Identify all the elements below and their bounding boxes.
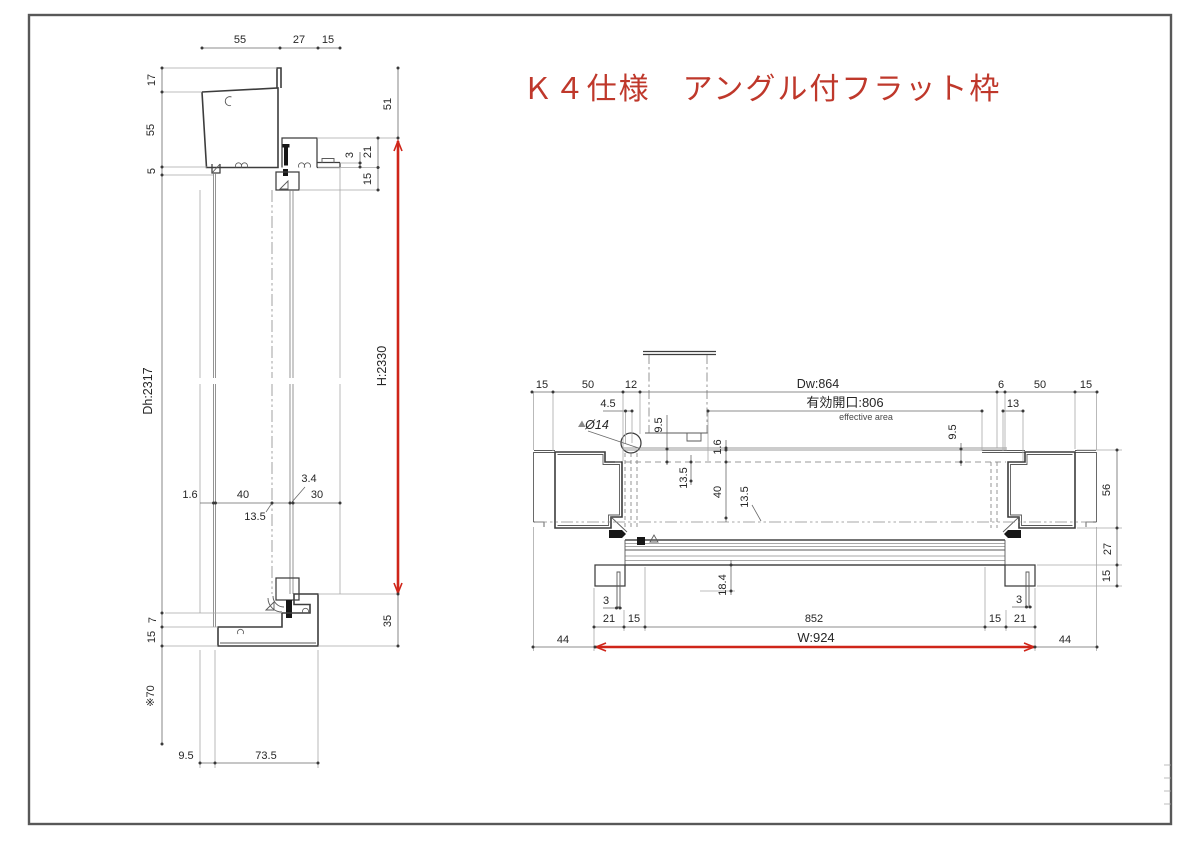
dim-15-rs: 15 bbox=[1101, 570, 1113, 582]
threshold-lines bbox=[625, 544, 1005, 561]
effective-area-label: effective area bbox=[839, 412, 893, 422]
cad-drawing: Ｋ４仕様 アングル付フラット枠 bbox=[0, 0, 1200, 848]
door-edge-dashes bbox=[625, 453, 997, 528]
head-clips bbox=[212, 97, 334, 173]
dim-55-side: 55 bbox=[145, 124, 157, 136]
door-width-label: Dw:864 bbox=[797, 377, 839, 391]
dim-15-bl: 15 bbox=[628, 613, 640, 625]
dim-15-right: 15 bbox=[362, 173, 374, 185]
dim-6-tr: 6 bbox=[998, 379, 1004, 391]
dim-13-5: 13.5 bbox=[244, 511, 265, 523]
drawing-title: Ｋ４仕様 アングル付フラット枠 bbox=[523, 73, 1002, 106]
door-bottom-seal bbox=[286, 600, 292, 618]
door-bottom-sweep bbox=[266, 596, 284, 612]
dim-15-top: 15 bbox=[322, 34, 334, 46]
dim-30: 30 bbox=[311, 489, 323, 501]
dim-7-bottom: 7 bbox=[147, 617, 159, 623]
door-face-lines bbox=[623, 448, 1007, 450]
jamb-left-inner bbox=[558, 455, 628, 533]
dim-73-5-bottom: 73.5 bbox=[255, 750, 276, 762]
right-leader-lines bbox=[588, 431, 761, 521]
dim-21-right: 21 bbox=[362, 146, 374, 158]
dim-9-5-bottom: 9.5 bbox=[178, 750, 193, 762]
dim-27-top: 27 bbox=[293, 34, 305, 46]
closer-bottom bbox=[645, 433, 708, 441]
dim-1-6-r: 1.6 bbox=[712, 439, 724, 454]
dim-852: 852 bbox=[805, 613, 823, 625]
hinge-diameter-label: Ø14 bbox=[584, 418, 609, 432]
dim-44-left: 44 bbox=[557, 634, 569, 646]
door-height-label: Dh:2317 bbox=[141, 367, 155, 414]
dim-1-6: 1.6 bbox=[182, 489, 197, 501]
horizontal-section: 15 50 12 Dw:864 6 50 15 有効開口:806 effecti… bbox=[531, 352, 1123, 652]
dim-3-4: 3.4 bbox=[301, 473, 316, 485]
closer-cap bbox=[643, 352, 716, 355]
dim-44-right: 44 bbox=[1059, 634, 1071, 646]
effective-opening-label: 有効開口:806 bbox=[806, 395, 883, 410]
dim-50-tr: 50 bbox=[1034, 379, 1046, 391]
jamb-right-profile bbox=[1008, 452, 1075, 528]
dim-40: 40 bbox=[237, 489, 249, 501]
drawing-sheet: Ｋ４仕様 アングル付フラット枠 bbox=[0, 0, 1200, 848]
head-frame-profile bbox=[202, 88, 278, 168]
base-plates bbox=[595, 565, 1035, 586]
dim-55-top: 55 bbox=[234, 34, 246, 46]
dim-17-side: 17 bbox=[146, 74, 158, 86]
anchor-screws bbox=[609, 530, 1021, 538]
vertical-section: 55 27 15 17 55 5 51 3 21 15 H:2330 Dh:23… bbox=[141, 34, 402, 768]
dim-15-bottom: 15 bbox=[146, 631, 158, 643]
wall-note-70: ※70 bbox=[145, 685, 157, 706]
dim-9-5-left: 9.5 bbox=[653, 417, 665, 432]
door-bottom-rail bbox=[276, 578, 299, 600]
dim-27: 27 bbox=[1102, 543, 1114, 555]
base-posts bbox=[617, 572, 1029, 607]
right-dim-ticks bbox=[531, 391, 1119, 649]
dim-13-5-a: 13.5 bbox=[678, 467, 690, 488]
right-extension-lines bbox=[534, 392, 1123, 651]
wall-left bbox=[534, 451, 556, 528]
dim-21-br: 21 bbox=[1014, 613, 1026, 625]
wall-face-lines bbox=[200, 168, 340, 614]
dim-51: 51 bbox=[382, 98, 394, 110]
width-label: W:924 bbox=[797, 630, 834, 645]
dim-15-br: 15 bbox=[989, 613, 1001, 625]
dim-4-5: 4.5 bbox=[600, 398, 615, 410]
threshold-seal bbox=[637, 537, 645, 545]
dim-3-br: 3 bbox=[1016, 594, 1022, 606]
dim-12-tl: 12 bbox=[625, 379, 637, 391]
head-screw bbox=[283, 144, 290, 176]
dim-35: 35 bbox=[382, 615, 394, 627]
door-panel-lines bbox=[214, 173, 294, 627]
jamb-left-profile bbox=[555, 452, 622, 528]
dim-21-bl: 21 bbox=[603, 613, 615, 625]
sill-profile bbox=[218, 594, 318, 646]
dim-3-bl: 3 bbox=[603, 595, 609, 607]
dim-56: 56 bbox=[1101, 484, 1113, 496]
threshold-marker bbox=[650, 535, 658, 542]
dim-15-tr: 15 bbox=[1080, 379, 1092, 391]
dim-5-side: 5 bbox=[146, 168, 158, 174]
dim-9-5-right: 9.5 bbox=[947, 424, 959, 439]
height-label: H:2330 bbox=[375, 346, 389, 386]
head-strip bbox=[317, 163, 340, 168]
dim-13: 13 bbox=[1007, 398, 1019, 410]
dim-50-tl: 50 bbox=[582, 379, 594, 391]
door-top-hatch bbox=[280, 181, 288, 189]
dim-18-4: 18.4 bbox=[717, 574, 729, 595]
dim-3-right: 3 bbox=[344, 152, 356, 158]
dim-15-tl: 15 bbox=[536, 379, 548, 391]
head-angle-tongue bbox=[277, 68, 281, 88]
dim-13-5-b: 13.5 bbox=[739, 486, 751, 507]
dim-40-r: 40 bbox=[712, 486, 724, 498]
jamb-right-inner bbox=[1003, 455, 1073, 533]
